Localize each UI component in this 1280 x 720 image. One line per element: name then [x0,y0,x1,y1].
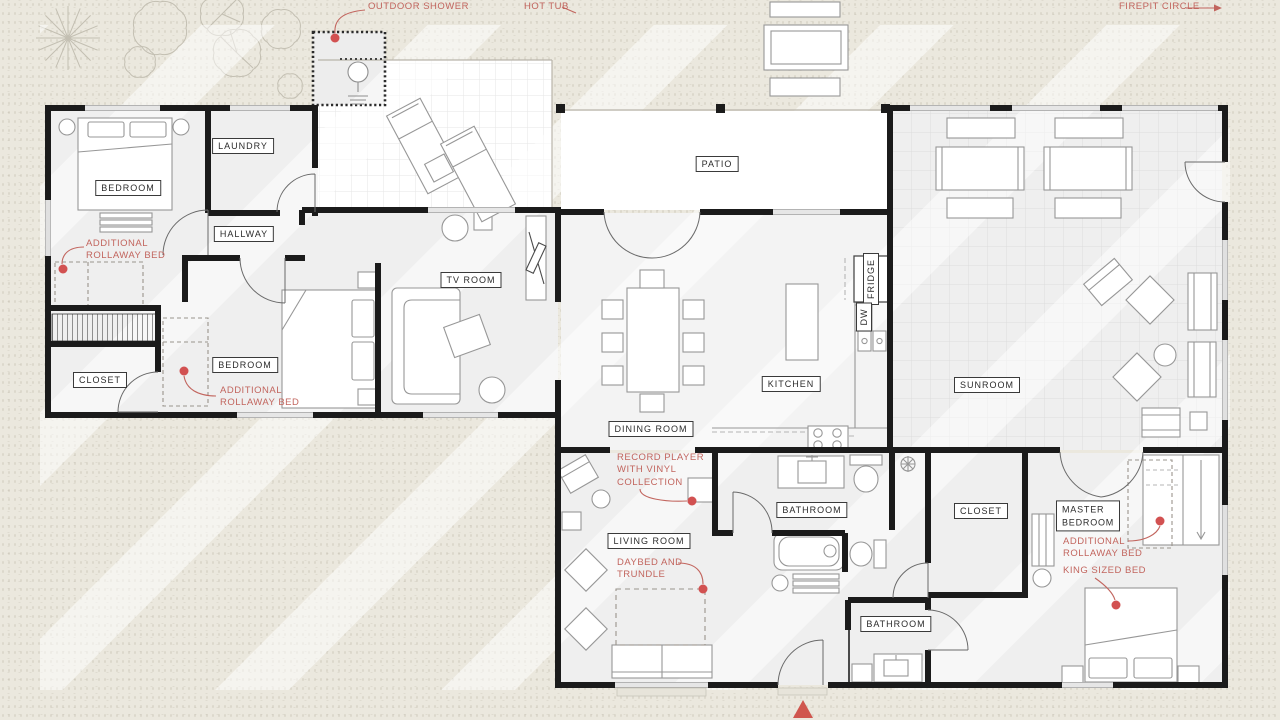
stool-icon [1033,569,1051,587]
annotation-rollaway-bedroom2: ADDITIONAL ROLLAWAY BED [220,385,308,410]
floorplan-canvas: LAUNDRY BEDROOM HALLWAY CLOSET BEDROOM T… [0,0,1280,720]
kitchen-island-icon [786,284,818,360]
bed-queen-icon [59,118,189,210]
label-fridge: FRIDGE [863,253,879,305]
poi-dot [331,34,340,43]
vanity-sink-icon [778,455,844,488]
plant-icon [901,456,915,472]
label-sunroom: SUNROOM [954,377,1020,393]
sofa-icon [612,645,712,678]
toilet-icon [850,540,886,568]
label-dishwasher: DW [856,303,872,332]
label-tv-room: TV ROOM [441,272,502,288]
label-laundry: LAUNDRY [212,138,274,154]
closet-rod-hatch [52,314,156,341]
label-bathroom-upper: BATHROOM [776,502,847,518]
poi-dot [180,367,189,376]
hot-tub-icon [764,2,848,96]
annotation-rollaway-bedroom1: ADDITIONAL ROLLAWAY BED [86,238,174,263]
floorplan-drawing [0,0,1280,720]
round-table-icon [442,215,468,241]
annotation-rollaway-master: ADDITIONAL ROLLAWAY BED [1063,536,1151,561]
sofa-icon [392,288,460,404]
label-patio: PATIO [696,156,739,172]
basket-icon [772,575,788,591]
annotation-king-bed: KING SIZED BED [1063,565,1146,577]
label-dining-room: DINING ROOM [609,421,694,437]
label-hot-tub: HOT TUB [524,1,569,13]
poi-dot [59,265,68,274]
shelf-unit-icon [1032,514,1054,566]
poi-dot [1112,601,1121,610]
bench-icon [100,213,152,232]
poi-dot [1156,517,1165,526]
label-bedroom-top-left: BEDROOM [95,180,161,196]
square-table-icon [562,512,581,530]
round-table-icon [1154,344,1176,366]
label-firepit-circle: FIREPIT CIRCLE [1119,1,1200,13]
cabinet-icon [852,664,872,682]
annotation-record-player: RECORD PLAYER WITH VINYL COLLECTION [617,452,711,489]
entry-marker-icon [793,700,813,718]
firepit-arrow-icon [1214,5,1222,12]
label-hallway: HALLWAY [214,226,274,242]
label-kitchen: KITCHEN [762,376,821,392]
sunroom-table-set-icon [1044,118,1132,218]
label-closet-master: CLOSET [954,503,1008,519]
poi-dot [688,497,697,506]
vanity-sink-icon [874,654,922,682]
label-living-room: LIVING ROOM [607,533,690,549]
wardrobe-icon [1143,455,1219,545]
label-bathroom-lower: BATHROOM [860,616,931,632]
sunroom-table-set-icon [936,118,1024,218]
side-table-icon [592,490,610,508]
label-bedroom-second: BEDROOM [212,357,278,373]
bathtub-icon [774,533,844,570]
annotation-daybed-trundle: DAYBED AND TRUNDLE [617,557,697,582]
towel-rack-icon [793,574,839,593]
side-table-icon [479,377,505,403]
label-outdoor-shower: OUTDOOR SHOWER [368,1,469,13]
label-master-bedroom: MASTER BEDROOM [1056,500,1120,531]
tv-console-icon [526,216,546,300]
label-closet-left: CLOSET [73,372,127,388]
poi-dot [699,585,708,594]
